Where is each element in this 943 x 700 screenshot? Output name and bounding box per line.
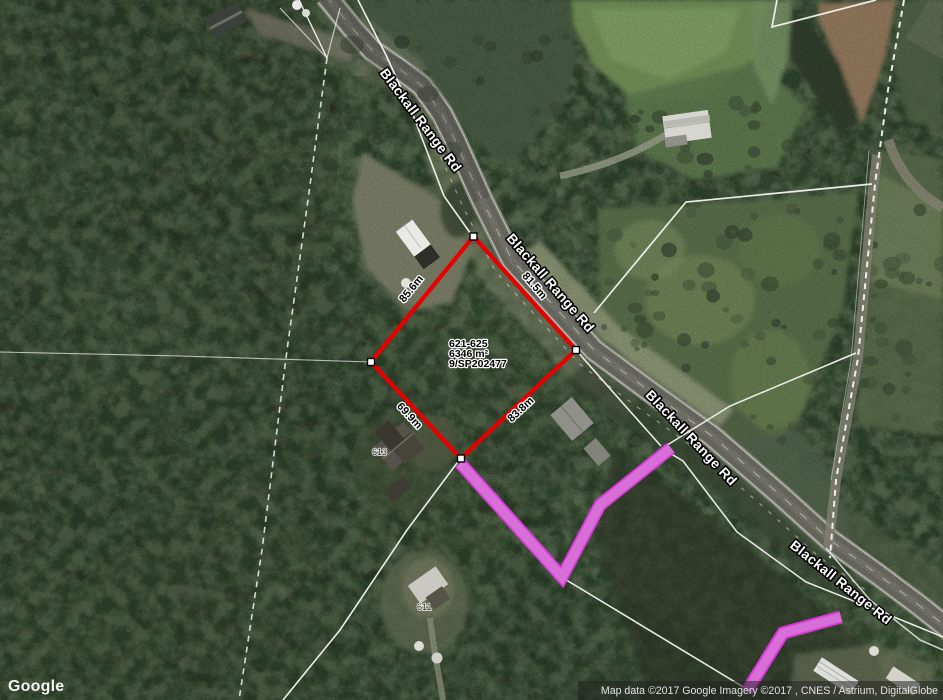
svg-text:Google: Google [8, 678, 64, 695]
svg-text:9/SP202477: 9/SP202477 [449, 358, 507, 370]
svg-text:Map data ©2017 Google Imagery: Map data ©2017 Google Imagery ©2017 , CN… [601, 685, 938, 697]
svg-text:611: 611 [417, 602, 431, 612]
svg-text:613: 613 [372, 447, 387, 457]
